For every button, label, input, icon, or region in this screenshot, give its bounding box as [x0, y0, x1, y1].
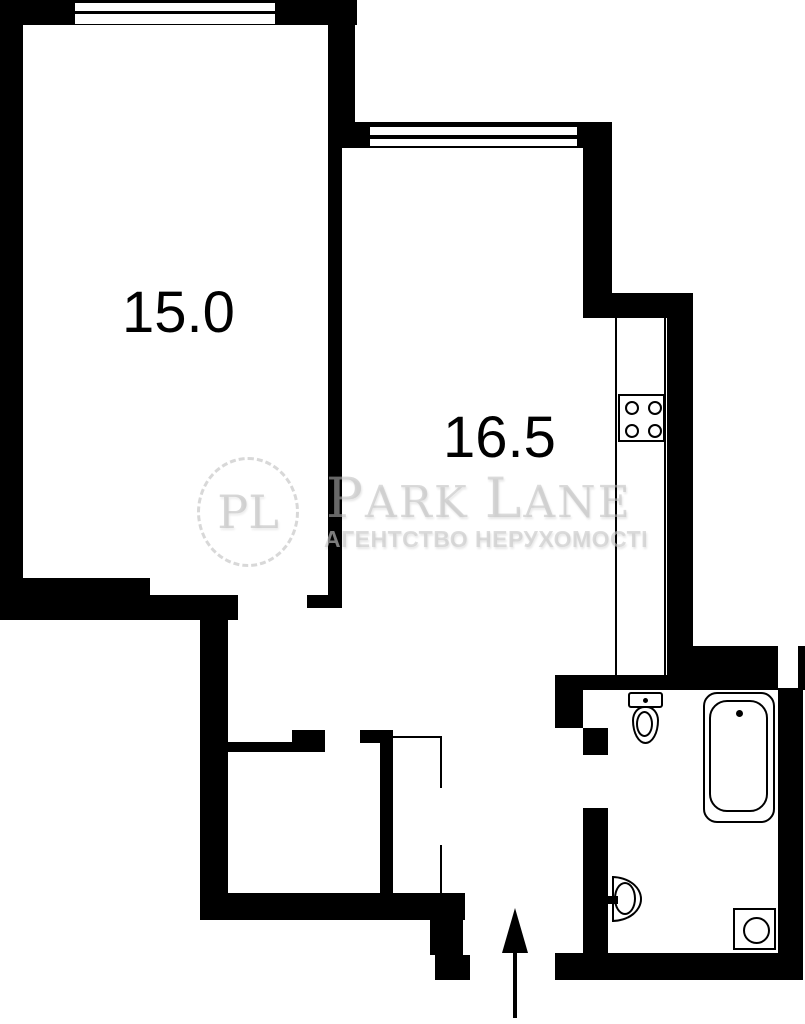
washing-machine-drum-icon [743, 917, 770, 944]
wall-bottom-room1-thick [23, 578, 150, 620]
stove-icon [618, 394, 665, 442]
watermark-brand: PARK LANE [326, 468, 632, 529]
wall-divider-upper [328, 0, 355, 122]
watermark-logo-initials: PL [217, 485, 279, 539]
stove-burner-icon [648, 424, 662, 438]
room1-area-label: 15.0 [122, 284, 235, 342]
wall-bath-left-lower [583, 808, 608, 953]
brand-letter: L [485, 466, 524, 530]
wall-kitchen-step [583, 293, 693, 318]
toilet-bowl-icon [632, 706, 659, 744]
wardrobe-right-line-lower [440, 845, 442, 893]
room2-area-label: 16.5 [443, 409, 556, 467]
wall-divider-foot [307, 595, 342, 608]
brand-space [469, 477, 485, 528]
bathtub-icon [703, 692, 775, 823]
wall-entrance-stub-a [430, 920, 463, 955]
wall-bath-bottom [555, 953, 803, 980]
washbasin-tap-icon [608, 896, 618, 904]
stove-burner-icon [625, 424, 639, 438]
toilet-bowl-inner [636, 711, 653, 737]
wall-bath-top-right [692, 646, 778, 690]
brand-letters: ANE [523, 477, 631, 528]
window-room1-pane1 [75, 3, 275, 11]
stove-burner-icon [625, 401, 639, 415]
bathtub-drain-icon [736, 710, 743, 717]
wall-left-outer [0, 0, 23, 620]
wall-hall-bottom [200, 893, 465, 920]
watermark-wreath-icon: PL [197, 457, 299, 567]
toilet-button-icon [643, 698, 648, 703]
kitchen-counter-right-edge [664, 318, 666, 676]
stove-burner-icon [648, 401, 662, 415]
wall-bath-left-upper [583, 728, 608, 755]
wall-edge-strip [798, 646, 805, 690]
wall-kitchen-right [667, 318, 693, 678]
washing-machine-icon [733, 908, 776, 950]
brand-letter: P [326, 466, 365, 530]
wall-closet-right [380, 730, 393, 893]
wall-closet-jamb-left [292, 730, 325, 752]
window-room2-pane2 [370, 139, 577, 146]
wardrobe-top-line [393, 736, 441, 738]
window-room2-pane1 [370, 127, 577, 135]
wall-entrance-stub-b [435, 955, 470, 980]
wall-right-room2 [583, 122, 612, 293]
brand-letters: ARK [365, 477, 469, 528]
entrance-arrow-shaft [513, 950, 517, 1018]
entrance-arrow-icon [502, 908, 528, 953]
wall-bath-top-left [555, 675, 692, 690]
window-room1-pane2 [75, 14, 275, 24]
wall-hall-left [200, 620, 228, 893]
wall-bottom-room1-thin [150, 595, 238, 620]
wardrobe-right-line-upper [440, 736, 442, 788]
watermark-tagline: АГЕНТСТВО НЕРУХОМОСТІ [324, 526, 648, 553]
floor-plan: 15.0 16.5 PL PARK LANE АГЕНТСТВО НЕРУХОМ… [0, 0, 805, 1024]
wall-bath-right [778, 688, 803, 980]
